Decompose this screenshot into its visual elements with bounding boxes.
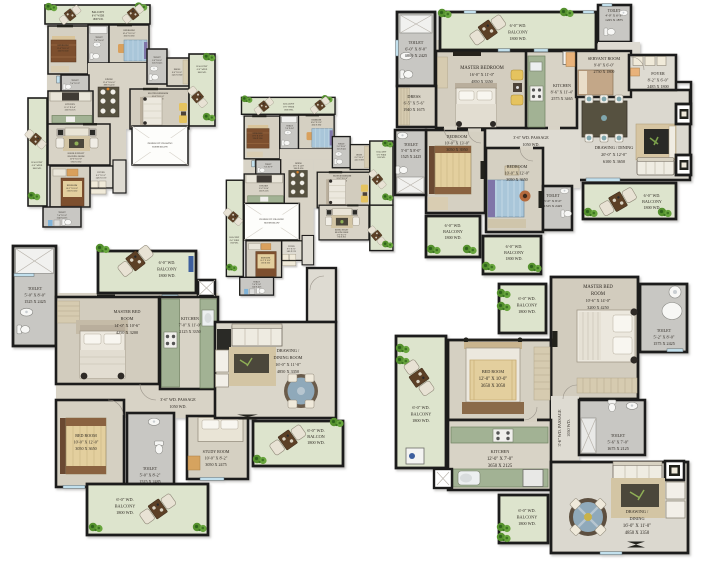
svg-text:1050 WD.: 1050 WD.	[523, 142, 540, 147]
svg-text:BALCONY: BALCONY	[504, 250, 524, 255]
svg-text:16'-0" X 11'-0": 16'-0" X 11'-0"	[623, 524, 651, 529]
svg-text:3050 X 3650: 3050 X 3650	[75, 446, 96, 451]
svg-text:1800 WD.: 1800 WD.	[506, 256, 523, 261]
svg-text:3'-6" WD. PASSAGE: 3'-6" WD. PASSAGE	[557, 409, 562, 446]
svg-text:BEDROOM: BEDROOM	[507, 164, 528, 169]
svg-text:TOILET: TOILET	[611, 433, 626, 438]
svg-text:BALCONY: BALCONY	[115, 504, 136, 509]
svg-text:1800 WD.: 1800 WD.	[307, 440, 325, 445]
svg-text:12'-0" X 10'-0": 12'-0" X 10'-0"	[479, 377, 508, 382]
svg-text:10'-0" X 13'-0": 10'-0" X 13'-0"	[445, 141, 470, 146]
svg-text:KITCHEN: KITCHEN	[553, 83, 571, 88]
svg-text:1800 WD.: 1800 WD.	[518, 309, 536, 314]
svg-text:4850 X 3350: 4850 X 3350	[471, 79, 492, 84]
svg-text:6'-0" WD.: 6'-0" WD.	[445, 223, 462, 228]
svg-text:MASTER BED: MASTER BED	[583, 285, 613, 290]
svg-text:1225 X 1875: 1225 X 1875	[605, 18, 623, 22]
svg-text:STUDY ROOM: STUDY ROOM	[203, 449, 230, 454]
svg-text:2750 X 1800: 2750 X 1800	[594, 69, 615, 74]
svg-text:1800 WD.: 1800 WD.	[445, 235, 462, 240]
svg-text:DINING: DINING	[629, 516, 644, 521]
svg-text:10'-0" X 12'-0": 10'-0" X 12'-0"	[505, 171, 530, 176]
svg-text:6'-5" X 5'-6": 6'-5" X 5'-6"	[404, 101, 425, 106]
svg-text:KITCHEN: KITCHEN	[491, 449, 510, 454]
svg-text:3050 X 3650: 3050 X 3650	[506, 177, 527, 182]
svg-text:3650 X 3050: 3650 X 3050	[481, 384, 506, 389]
svg-text:16'-0" X 11'-0": 16'-0" X 11'-0"	[470, 72, 495, 77]
svg-text:DRESS: DRESS	[407, 94, 421, 99]
svg-text:5'-6" X 7'-0": 5'-6" X 7'-0"	[608, 440, 629, 445]
svg-text:1800 WD.: 1800 WD.	[644, 205, 661, 210]
svg-text:TOILET: TOILET	[608, 9, 621, 13]
svg-text:DINING ROOM: DINING ROOM	[274, 355, 303, 360]
svg-text:4250 X 3200: 4250 X 3200	[116, 330, 138, 335]
svg-text:12'-0" X 7'-0": 12'-0" X 7'-0"	[487, 457, 513, 462]
svg-text:1800 WD.: 1800 WD.	[518, 521, 536, 526]
svg-text:BEDROOM: BEDROOM	[447, 134, 468, 139]
svg-text:1800 WD.: 1800 WD.	[510, 36, 527, 41]
svg-text:16'-0" X 11'-0": 16'-0" X 11'-0"	[275, 362, 301, 367]
svg-text:1050 WD.: 1050 WD.	[170, 404, 187, 409]
svg-text:3'-6" WD. PASSAGE: 3'-6" WD. PASSAGE	[513, 135, 549, 140]
svg-text:DRAWING /: DRAWING /	[277, 348, 300, 353]
svg-text:6'-0" WD.: 6'-0" WD.	[159, 260, 176, 265]
svg-text:9'-0" X 6'-0": 9'-0" X 6'-0"	[594, 63, 615, 68]
svg-text:14'-0" X 10'-6": 14'-0" X 10'-6"	[114, 323, 140, 328]
svg-text:BALCONY: BALCONY	[517, 303, 538, 308]
svg-text:BALCON: BALCON	[307, 434, 324, 439]
svg-text:1800 X 2425: 1800 X 2425	[405, 53, 427, 58]
svg-text:1940 X 1675: 1940 X 1675	[403, 107, 424, 112]
svg-text:6'-0" WD.: 6'-0" WD.	[412, 405, 429, 410]
svg-text:1800 WD.: 1800 WD.	[159, 273, 176, 278]
svg-text:DRAWING /: DRAWING /	[626, 509, 649, 514]
svg-text:1575 X 2425: 1575 X 2425	[653, 341, 675, 346]
svg-text:2485 X 1800: 2485 X 1800	[647, 84, 668, 89]
svg-text:6100 X 3650: 6100 X 3650	[603, 159, 625, 164]
svg-text:6'-0" WD.: 6'-0" WD.	[510, 23, 527, 28]
svg-text:1800 WD.: 1800 WD.	[116, 510, 134, 515]
svg-text:TOILET: TOILET	[657, 328, 672, 333]
svg-text:6'-0" WD.: 6'-0" WD.	[307, 428, 324, 433]
svg-text:ROOM: ROOM	[591, 292, 606, 297]
svg-text:6'-0" WD.: 6'-0" WD.	[518, 296, 535, 301]
svg-text:5'-0" X 8'-0": 5'-0" X 8'-0"	[401, 149, 421, 153]
svg-text:MASTER BED: MASTER BED	[114, 309, 141, 314]
svg-text:BALCONY: BALCONY	[508, 30, 528, 35]
svg-text:5'-0" X 8'-0": 5'-0" X 8'-0"	[25, 293, 46, 298]
svg-text:6'-0" WD.: 6'-0" WD.	[116, 497, 133, 502]
svg-text:ROOM: ROOM	[121, 316, 134, 321]
svg-text:10'-6" X 14'-0": 10'-6" X 14'-0"	[586, 298, 611, 303]
svg-text:DRAWING / DINING: DRAWING / DINING	[595, 145, 634, 150]
svg-text:TOILET: TOILET	[28, 286, 43, 291]
svg-text:SERVANT ROOM: SERVANT ROOM	[588, 56, 621, 61]
svg-text:5'-2" X 8'-0": 5'-2" X 8'-0"	[654, 335, 675, 340]
svg-text:KITCHEN: KITCHEN	[181, 316, 199, 321]
svg-text:4850 X 3350: 4850 X 3350	[277, 369, 299, 374]
svg-text:BALCONY: BALCONY	[517, 515, 538, 520]
svg-text:7'-0" X 11'-0": 7'-0" X 11'-0"	[179, 323, 202, 328]
svg-text:8'-6" X 11'-4": 8'-6" X 11'-4"	[551, 90, 574, 95]
svg-text:1675 X 2125: 1675 X 2125	[607, 446, 629, 451]
svg-text:4'-0" X 6'-3": 4'-0" X 6'-3"	[605, 14, 623, 18]
svg-text:2125 X 3350: 2125 X 3350	[179, 329, 200, 334]
svg-text:BALCONY: BALCONY	[443, 229, 463, 234]
svg-text:FOYER: FOYER	[651, 71, 665, 76]
svg-text:BALCONY: BALCONY	[157, 267, 177, 272]
svg-text:8'-2" X 6'-0": 8'-2" X 6'-0"	[648, 78, 669, 83]
svg-text:6'-0" WD.: 6'-0" WD.	[506, 244, 523, 249]
svg-text:BALCONY: BALCONY	[642, 199, 662, 204]
svg-text:1525 X 2425: 1525 X 2425	[544, 204, 563, 208]
svg-text:TOILET: TOILET	[404, 142, 419, 147]
svg-text:5'-0" X 8'-0": 5'-0" X 8'-0"	[544, 199, 562, 203]
svg-text:10'-0" X 8'-2": 10'-0" X 8'-2"	[205, 456, 228, 461]
svg-text:3050 X 2475: 3050 X 2475	[205, 462, 226, 467]
svg-text:MASTER BEDROOM: MASTER BEDROOM	[460, 66, 504, 71]
svg-text:1525 X 2425: 1525 X 2425	[401, 155, 421, 159]
svg-text:1800 WD.: 1800 WD.	[412, 418, 430, 423]
svg-text:3650 X 2125: 3650 X 2125	[488, 464, 513, 469]
svg-text:BED ROOM: BED ROOM	[75, 433, 97, 438]
svg-text:3200 X 4250: 3200 X 4250	[587, 305, 608, 310]
svg-text:BALCONY: BALCONY	[411, 412, 432, 417]
svg-text:TOILET: TOILET	[143, 466, 158, 471]
svg-text:1525 X 2425: 1525 X 2425	[24, 299, 46, 304]
svg-text:BED ROOM: BED ROOM	[482, 369, 505, 374]
svg-text:4850 X 3350: 4850 X 3350	[625, 531, 650, 536]
svg-text:6'-0" WD.: 6'-0" WD.	[644, 193, 661, 198]
svg-text:3'-6" WD. PASSAGE: 3'-6" WD. PASSAGE	[160, 397, 196, 402]
svg-text:3050 X 3950: 3050 X 3950	[446, 147, 467, 152]
svg-text:20'-0" X 12'-0": 20'-0" X 12'-0"	[601, 152, 627, 157]
svg-text:2575 X 3465: 2575 X 3465	[551, 96, 572, 101]
svg-text:1050 WD.: 1050 WD.	[566, 419, 571, 437]
svg-text:6'-0" X 8'-0": 6'-0" X 8'-0"	[405, 47, 427, 52]
svg-text:TOILET: TOILET	[546, 194, 560, 198]
svg-text:5'-0" X 8'-2": 5'-0" X 8'-2"	[140, 473, 161, 478]
svg-text:10'-0" X 12'-0": 10'-0" X 12'-0"	[74, 440, 99, 445]
svg-text:6'-0" WD.: 6'-0" WD.	[518, 508, 535, 513]
svg-text:TOILET: TOILET	[409, 40, 424, 45]
